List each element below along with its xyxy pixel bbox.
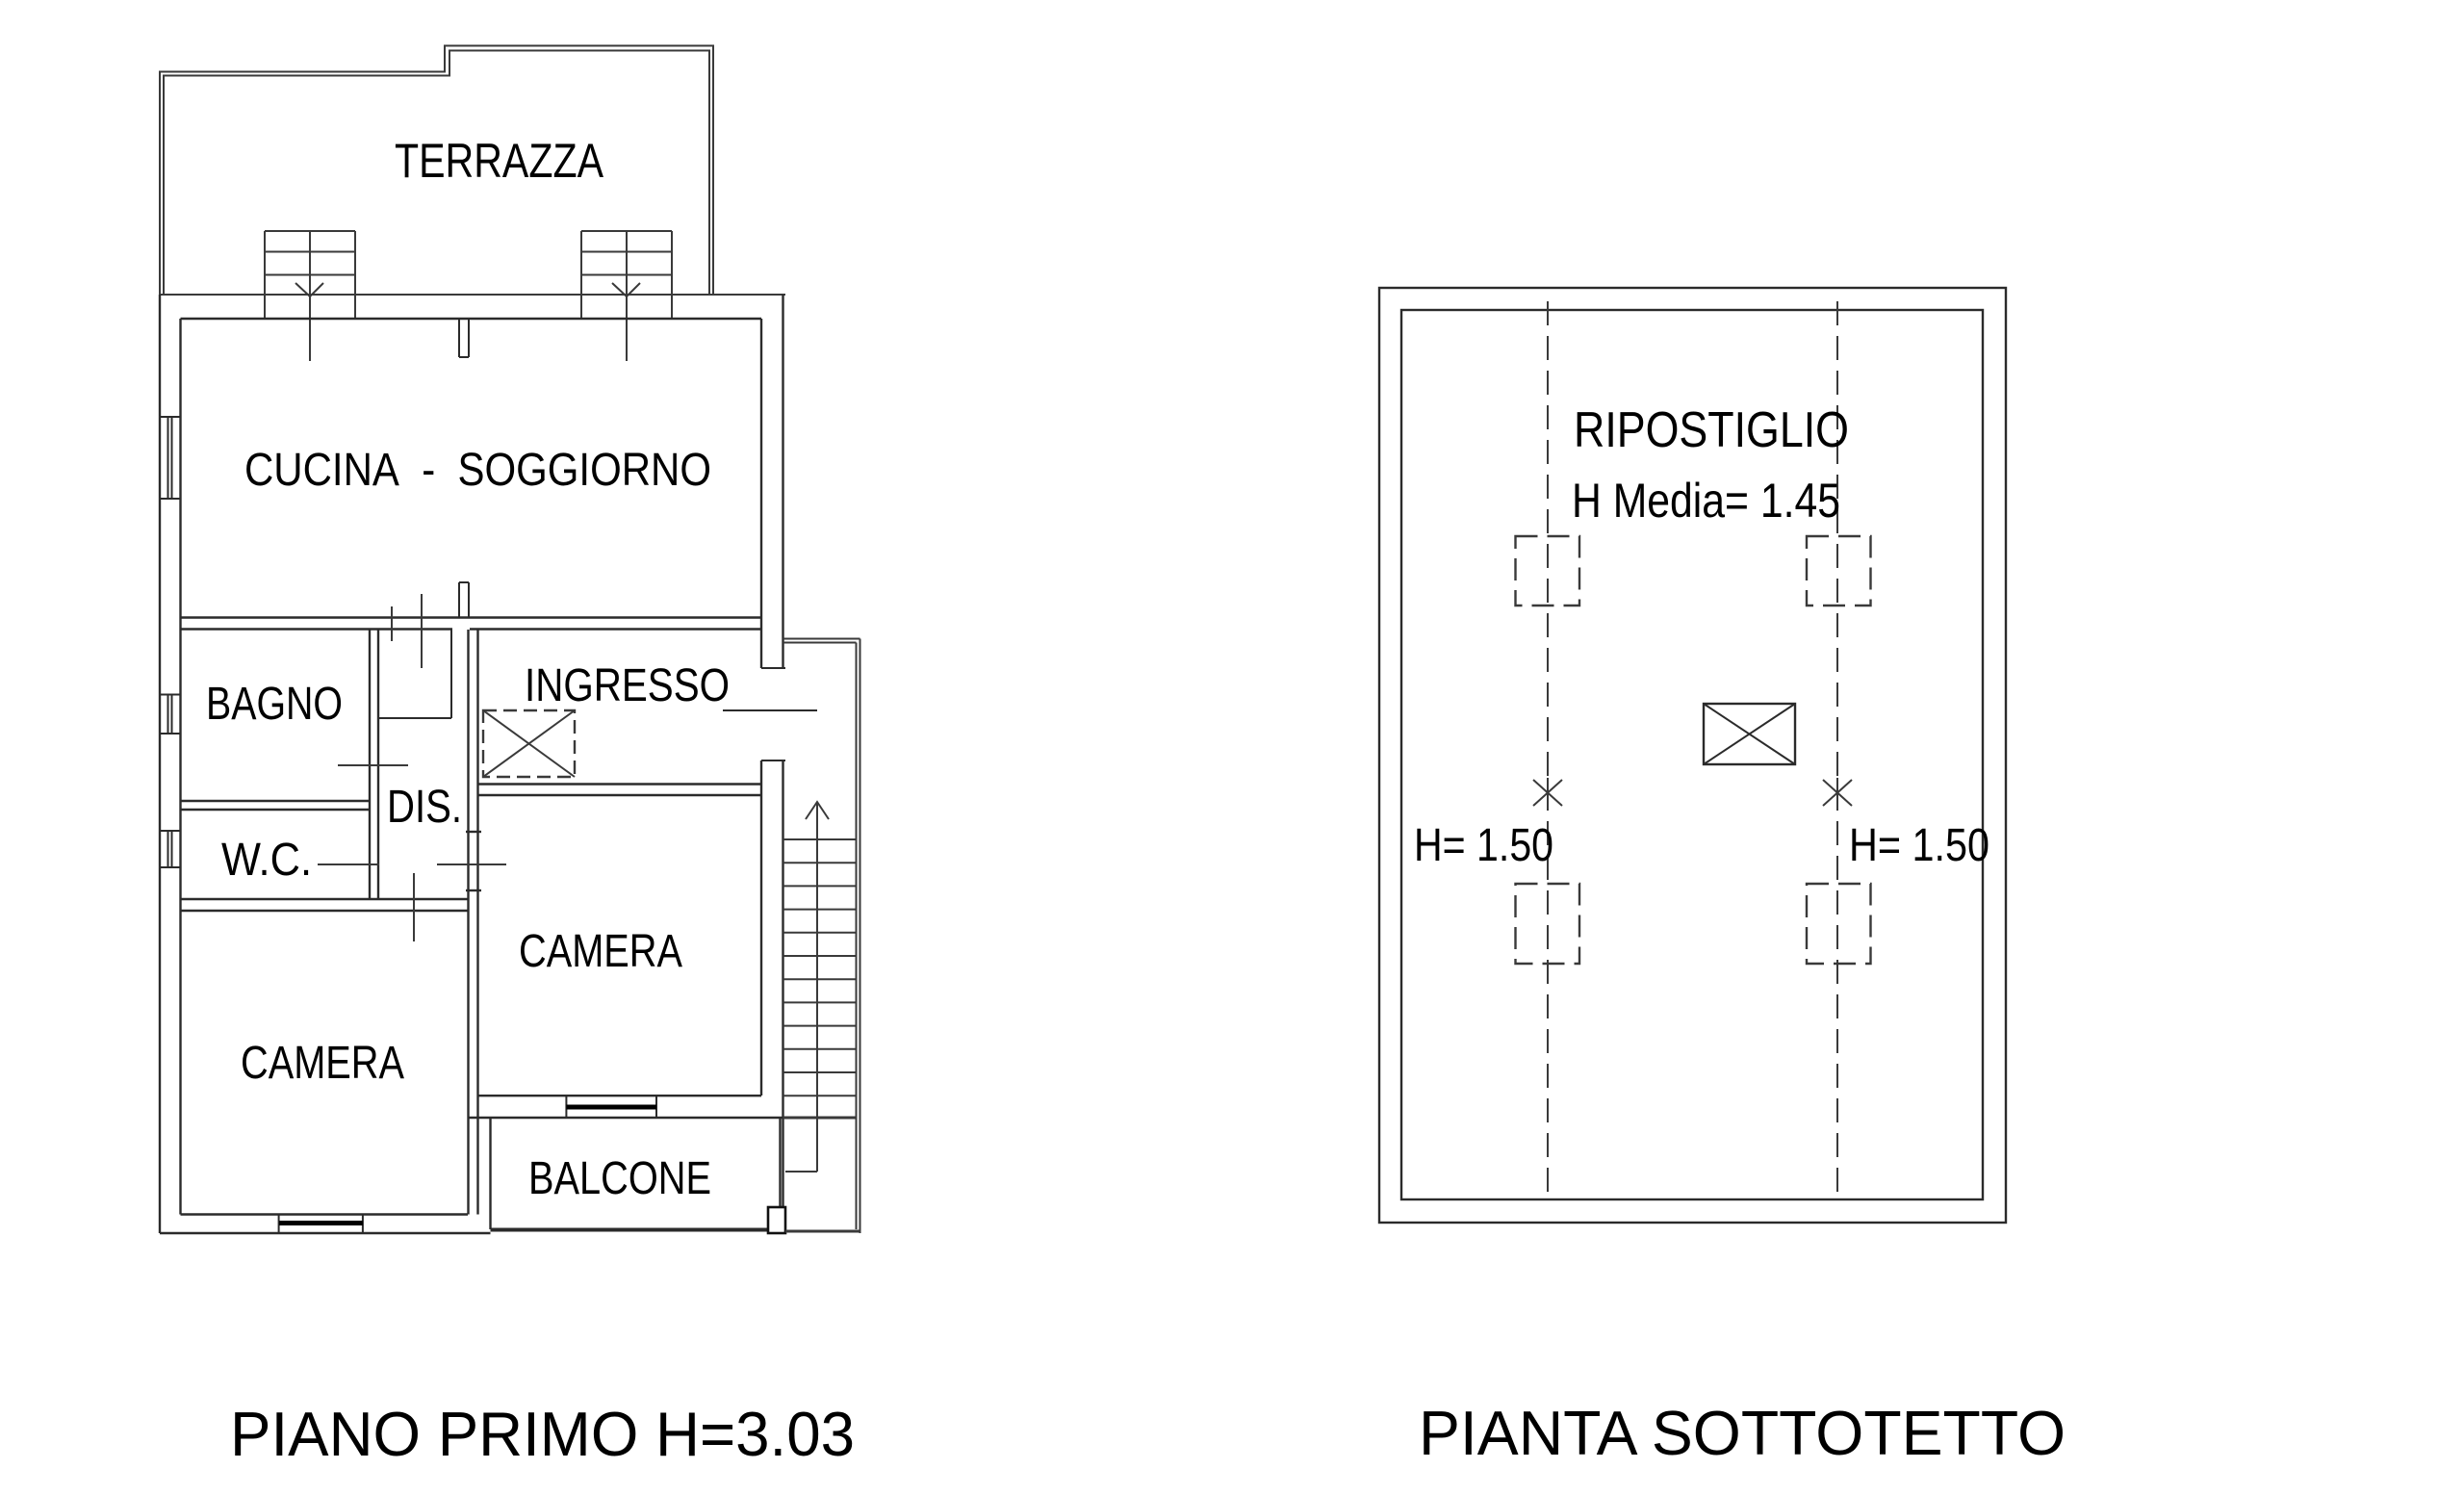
svg-text:H= 1.50: H= 1.50 [1849,820,1989,871]
svg-text:PIANTA SOTTOTETTO: PIANTA SOTTOTETTO [1419,1398,2066,1468]
svg-text:BALCONE: BALCONE [528,1153,711,1204]
svg-text:TERRAZZA: TERRAZZA [395,134,604,188]
svg-text:CUCINA - SOGGIORNO: CUCINA - SOGGIORNO [244,445,711,496]
svg-text:PIANO PRIMO H=3.03: PIANO PRIMO H=3.03 [230,1399,855,1469]
svg-text:H Media= 1.45: H Media= 1.45 [1572,474,1840,528]
svg-text:W.C.: W.C. [221,835,312,886]
svg-text:BAGNO: BAGNO [206,679,343,730]
svg-text:CAMERA: CAMERA [241,1038,404,1089]
svg-text:DIS.: DIS. [387,782,462,833]
svg-text:CAMERA: CAMERA [519,926,682,977]
svg-text:RIPOSTIGLIO: RIPOSTIGLIO [1574,402,1849,458]
svg-text:H= 1.50: H= 1.50 [1414,820,1553,871]
svg-text:INGRESSO: INGRESSO [525,660,730,711]
